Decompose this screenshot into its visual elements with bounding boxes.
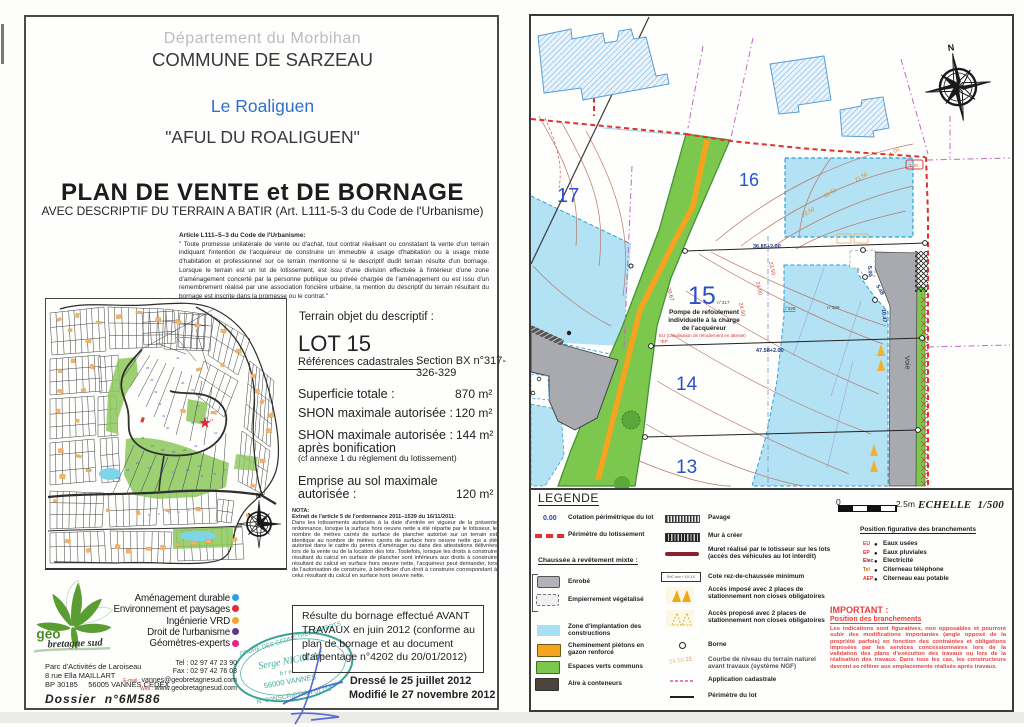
svg-text:16: 16	[739, 170, 759, 190]
svg-text:14: 14	[676, 374, 698, 395]
svg-text:31: 31	[162, 414, 166, 418]
svg-text:Voie: Voie	[903, 356, 911, 370]
svg-text:35: 35	[146, 366, 150, 370]
svg-text:10.47: 10.47	[880, 309, 887, 323]
svg-text:*EP: *EP	[660, 339, 668, 344]
svg-text:22: 22	[126, 468, 130, 472]
svg-text:N: N	[256, 493, 261, 500]
svg-text:Pompe de refoulement: Pompe de refoulement	[669, 309, 740, 316]
svg-text:de l'acquéreur: de l'acquéreur	[682, 325, 727, 332]
svg-text:26: 26	[161, 448, 165, 452]
svg-text:n°329: n°329	[827, 305, 840, 311]
svg-text:n°326: n°326	[783, 306, 796, 312]
svg-text:13: 13	[676, 457, 697, 478]
svg-text:n°317: n°317	[717, 300, 730, 306]
svg-text:1.00: 1.00	[909, 163, 918, 168]
svg-text:5: 5	[158, 512, 160, 516]
svg-text:19: 19	[148, 466, 152, 470]
svg-text:15: 15	[198, 464, 202, 468]
svg-text:25: 25	[172, 450, 176, 454]
svg-text:21: 21	[116, 476, 120, 480]
svg-text:EU (canalisation de refoulemen: EU (canalisation de refoulement en atten…	[659, 333, 746, 338]
svg-text:N: N	[947, 42, 955, 53]
svg-text:47.58+2.00: 47.58+2.00	[756, 348, 784, 354]
svg-text:15: 15	[210, 418, 214, 422]
svg-text:15: 15	[688, 282, 716, 310]
svg-text:30: 30	[166, 426, 170, 430]
svg-text:18: 18	[160, 469, 164, 473]
svg-text:34: 34	[150, 378, 154, 382]
svg-text:40: 40	[196, 404, 200, 408]
svg-text:24.00: 24.00	[754, 281, 763, 296]
svg-text:5.00: 5.00	[866, 266, 873, 277]
svg-text:33: 33	[154, 390, 158, 394]
svg-text:20: 20	[136, 461, 140, 465]
svg-text:2: 2	[188, 508, 190, 512]
svg-text:36.85+2.00: 36.85+2.00	[753, 244, 781, 250]
svg-text:23: 23	[194, 444, 198, 448]
svg-text:32: 32	[158, 402, 162, 406]
svg-text:28: 28	[141, 436, 145, 440]
svg-text:37: 37	[191, 388, 195, 392]
svg-text:27: 27	[151, 444, 155, 448]
svg-text:44: 44	[176, 356, 180, 360]
svg-text:24: 24	[183, 448, 187, 452]
svg-text:individuelle à la charge: individuelle à la charge	[668, 317, 740, 324]
svg-text:36: 36	[181, 381, 185, 385]
svg-text:3: 3	[178, 510, 180, 514]
svg-text:10: 10	[214, 431, 218, 435]
svg-text:17: 17	[557, 185, 579, 207]
svg-text:16: 16	[186, 468, 190, 472]
svg-text:6: 6	[148, 513, 150, 517]
svg-text:17: 17	[172, 470, 176, 474]
svg-text:39: 39	[191, 421, 195, 425]
